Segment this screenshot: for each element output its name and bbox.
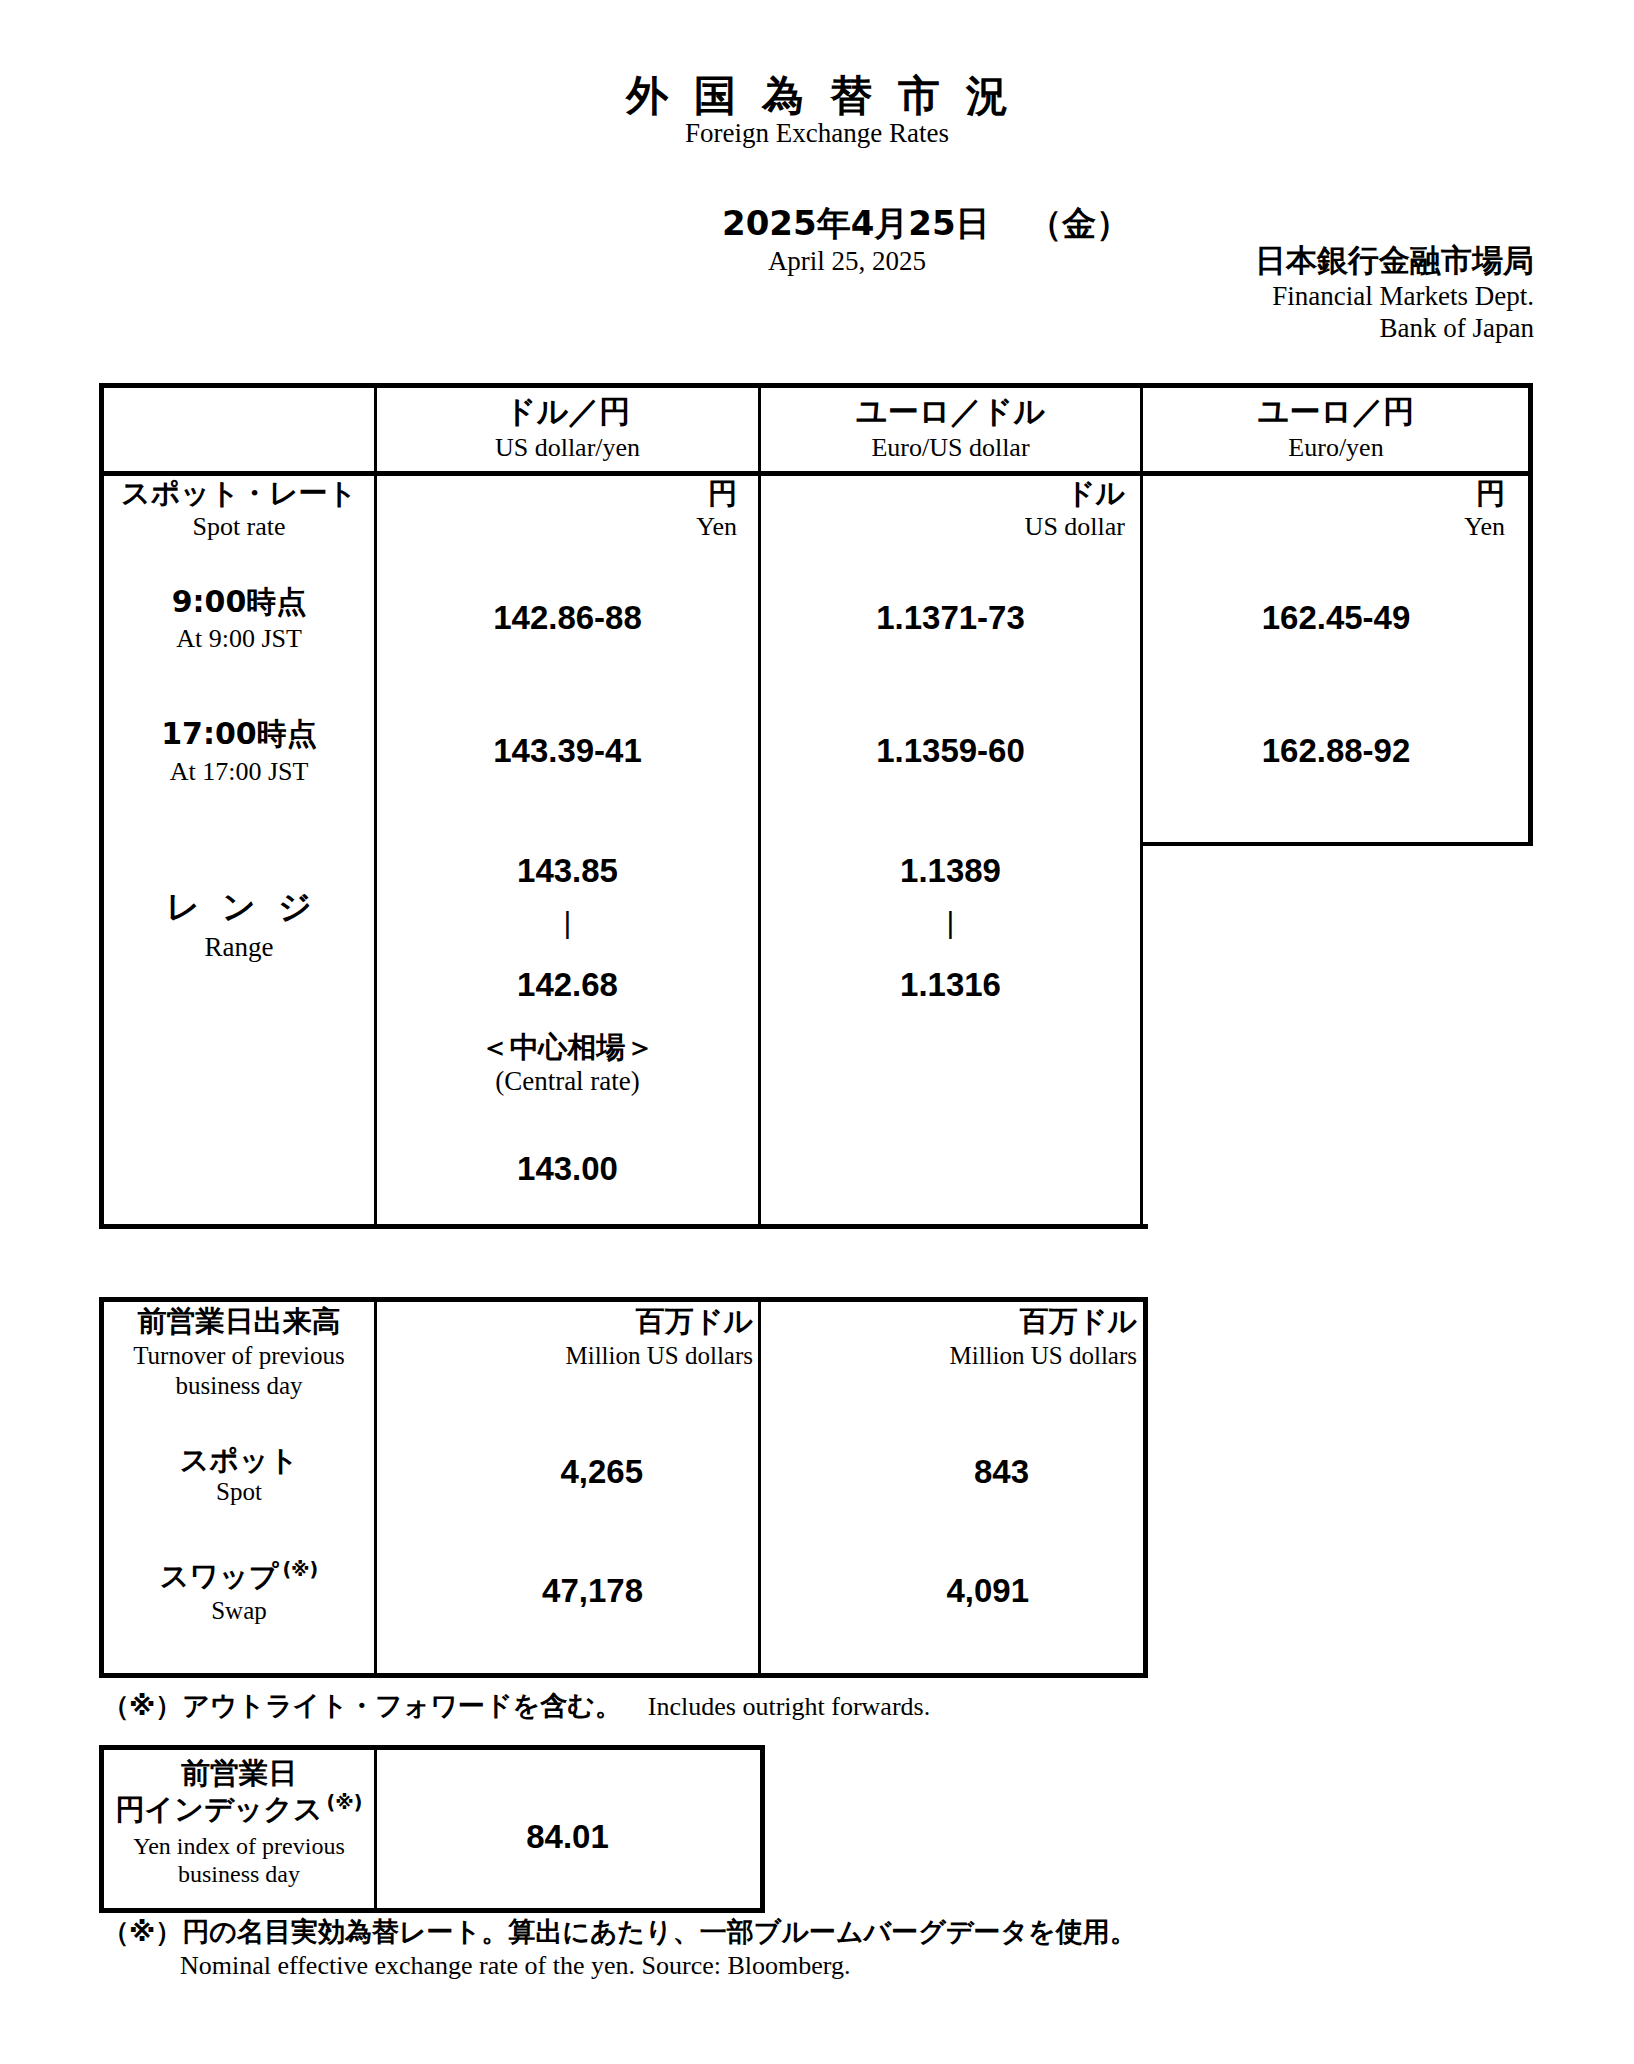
- col-header-eurusd-jp: ユーロ／ドル: [761, 394, 1140, 430]
- row-1700-label-en: At 17:00 JST: [104, 757, 374, 787]
- rate-900-eurusd: 1.1371-73: [761, 599, 1140, 637]
- yen-index-footnote-mark: (※): [327, 1791, 363, 1813]
- grid-line: [760, 1745, 765, 1913]
- yen-index-label-jp2-text: 円インデックス: [116, 1792, 323, 1826]
- grid-line: [99, 1745, 765, 1750]
- unit-eurusd-en: US dollar: [761, 512, 1125, 542]
- org-name-jp: 日本銀行金融市場局: [1255, 243, 1534, 279]
- turnover-unit-col2-jp: 百万ドル: [761, 1305, 1137, 1338]
- yen-index-label-en2: business day: [104, 1861, 374, 1889]
- range-usdjpy-low: 142.68: [377, 966, 758, 1004]
- yen-index-label-jp2: 円インデックス(※): [104, 1793, 374, 1826]
- grid-line: [99, 1297, 1148, 1302]
- unit-usdjpy-en: Yen: [377, 512, 737, 542]
- range-label-en: Range: [104, 932, 374, 963]
- report-date-en: April 25, 2025: [697, 246, 997, 277]
- grid-line: [99, 1908, 765, 1913]
- row-900-label-jp: 9:00時点: [104, 585, 374, 620]
- col-header-usdjpy-jp: ドル／円: [377, 394, 758, 430]
- grid-line: [99, 1673, 1148, 1678]
- org-dept-en: Financial Markets Dept.: [1272, 281, 1534, 312]
- report-date-jp: 2025年4月25日: [722, 204, 990, 243]
- range-eurusd-separator: |: [761, 906, 1140, 941]
- turnover-unit-col1-en: Million US dollars: [377, 1342, 753, 1371]
- range-usdjpy-separator: |: [377, 906, 758, 941]
- grid-line: [1141, 842, 1533, 846]
- footnote-outright: （※）アウトライト・フォワードを含む。Includes outright for…: [102, 1690, 930, 1722]
- yen-index-label-jp1: 前営業日: [104, 1757, 374, 1790]
- rate-1700-usdjpy: 143.39-41: [377, 732, 758, 770]
- grid-line: [99, 383, 1533, 388]
- yen-index-label-en1: Yen index of previous: [104, 1833, 374, 1861]
- unit-eurjpy-jp: 円: [1143, 477, 1505, 510]
- spot-rate-label-jp: スポット・レート: [104, 477, 374, 510]
- page-title-jp-text: 外国為替市況: [600, 71, 1034, 120]
- central-rate-label-en: (Central rate): [377, 1066, 758, 1097]
- report-weekday-jp: （金）: [1028, 204, 1130, 243]
- turnover-label-jp: 前営業日出来高: [104, 1305, 374, 1338]
- range-usdjpy-high: 143.85: [377, 852, 758, 890]
- range-eurusd-low: 1.1316: [761, 966, 1140, 1004]
- turnover-swap-label-jp-text: スワップ: [160, 1559, 279, 1593]
- turnover-spot-eurusd: 843: [761, 1453, 1029, 1491]
- row-1700-label-jp: 17:00時点: [104, 717, 374, 752]
- page-title-en: Foreign Exchange Rates: [0, 118, 1634, 149]
- unit-eurusd-jp: ドル: [761, 477, 1125, 510]
- col-header-eurjpy-jp: ユーロ／円: [1143, 394, 1529, 430]
- range-eurusd-high: 1.1389: [761, 852, 1140, 890]
- page-title-jp: 外国為替市況: [0, 72, 1634, 120]
- turnover-swap-usdjpy: 47,178: [377, 1572, 643, 1610]
- rate-1700-eurusd: 1.1359-60: [761, 732, 1140, 770]
- turnover-unit-col1-jp: 百万ドル: [377, 1305, 753, 1338]
- col-header-eurusd-en: Euro/US dollar: [761, 433, 1140, 463]
- spot-rate-label-en: Spot rate: [104, 512, 374, 542]
- turnover-swap-footnote-mark: (※): [282, 1558, 318, 1580]
- range-label-jp-text: レンジ: [144, 887, 333, 926]
- footnote-neer-jp: （※）円の名目実効為替レート。算出にあたり、一部ブルームバーグデータを使用。: [102, 1916, 1137, 1947]
- col-header-eurjpy-en: Euro/yen: [1143, 433, 1529, 463]
- fx-rates-document: 外国為替市況 Foreign Exchange Rates 2025年4月25日…: [0, 0, 1634, 2064]
- central-rate-label-jp: ＜中心相場＞: [377, 1031, 758, 1064]
- turnover-label-en2: business day: [104, 1372, 374, 1401]
- central-rate-value: 143.00: [377, 1150, 758, 1188]
- rate-1700-eurjpy: 162.88-92: [1143, 732, 1529, 770]
- footnote-neer-en: Nominal effective exchange rate of the y…: [180, 1951, 850, 1981]
- rate-900-eurjpy: 162.45-49: [1143, 599, 1529, 637]
- turnover-spot-label-jp: スポット: [104, 1444, 374, 1477]
- range-label-jp: レンジ: [104, 888, 374, 926]
- rate-900-usdjpy: 142.86-88: [377, 599, 758, 637]
- unit-usdjpy-jp: 円: [377, 477, 737, 510]
- col-header-usdjpy-en: US dollar/yen: [377, 433, 758, 463]
- turnover-swap-label-jp: スワップ(※): [104, 1560, 374, 1593]
- yen-index-value: 84.01: [377, 1818, 758, 1856]
- footnote-outright-jp: （※）アウトライト・フォワードを含む。: [102, 1690, 622, 1721]
- turnover-spot-usdjpy: 4,265: [377, 1453, 643, 1491]
- turnover-swap-eurusd: 4,091: [761, 1572, 1029, 1610]
- turnover-spot-label-en: Spot: [104, 1478, 374, 1507]
- org-bank-en: Bank of Japan: [1380, 313, 1534, 344]
- turnover-unit-col2-en: Million US dollars: [761, 1342, 1137, 1371]
- row-900-label-en: At 9:00 JST: [104, 624, 374, 654]
- turnover-swap-label-en: Swap: [104, 1597, 374, 1626]
- footnote-outright-en: Includes outright forwards.: [648, 1692, 930, 1721]
- grid-line: [99, 1224, 1148, 1229]
- unit-eurjpy-en: Yen: [1143, 512, 1505, 542]
- turnover-label-en1: Turnover of previous: [104, 1342, 374, 1371]
- grid-line: [1143, 1297, 1148, 1678]
